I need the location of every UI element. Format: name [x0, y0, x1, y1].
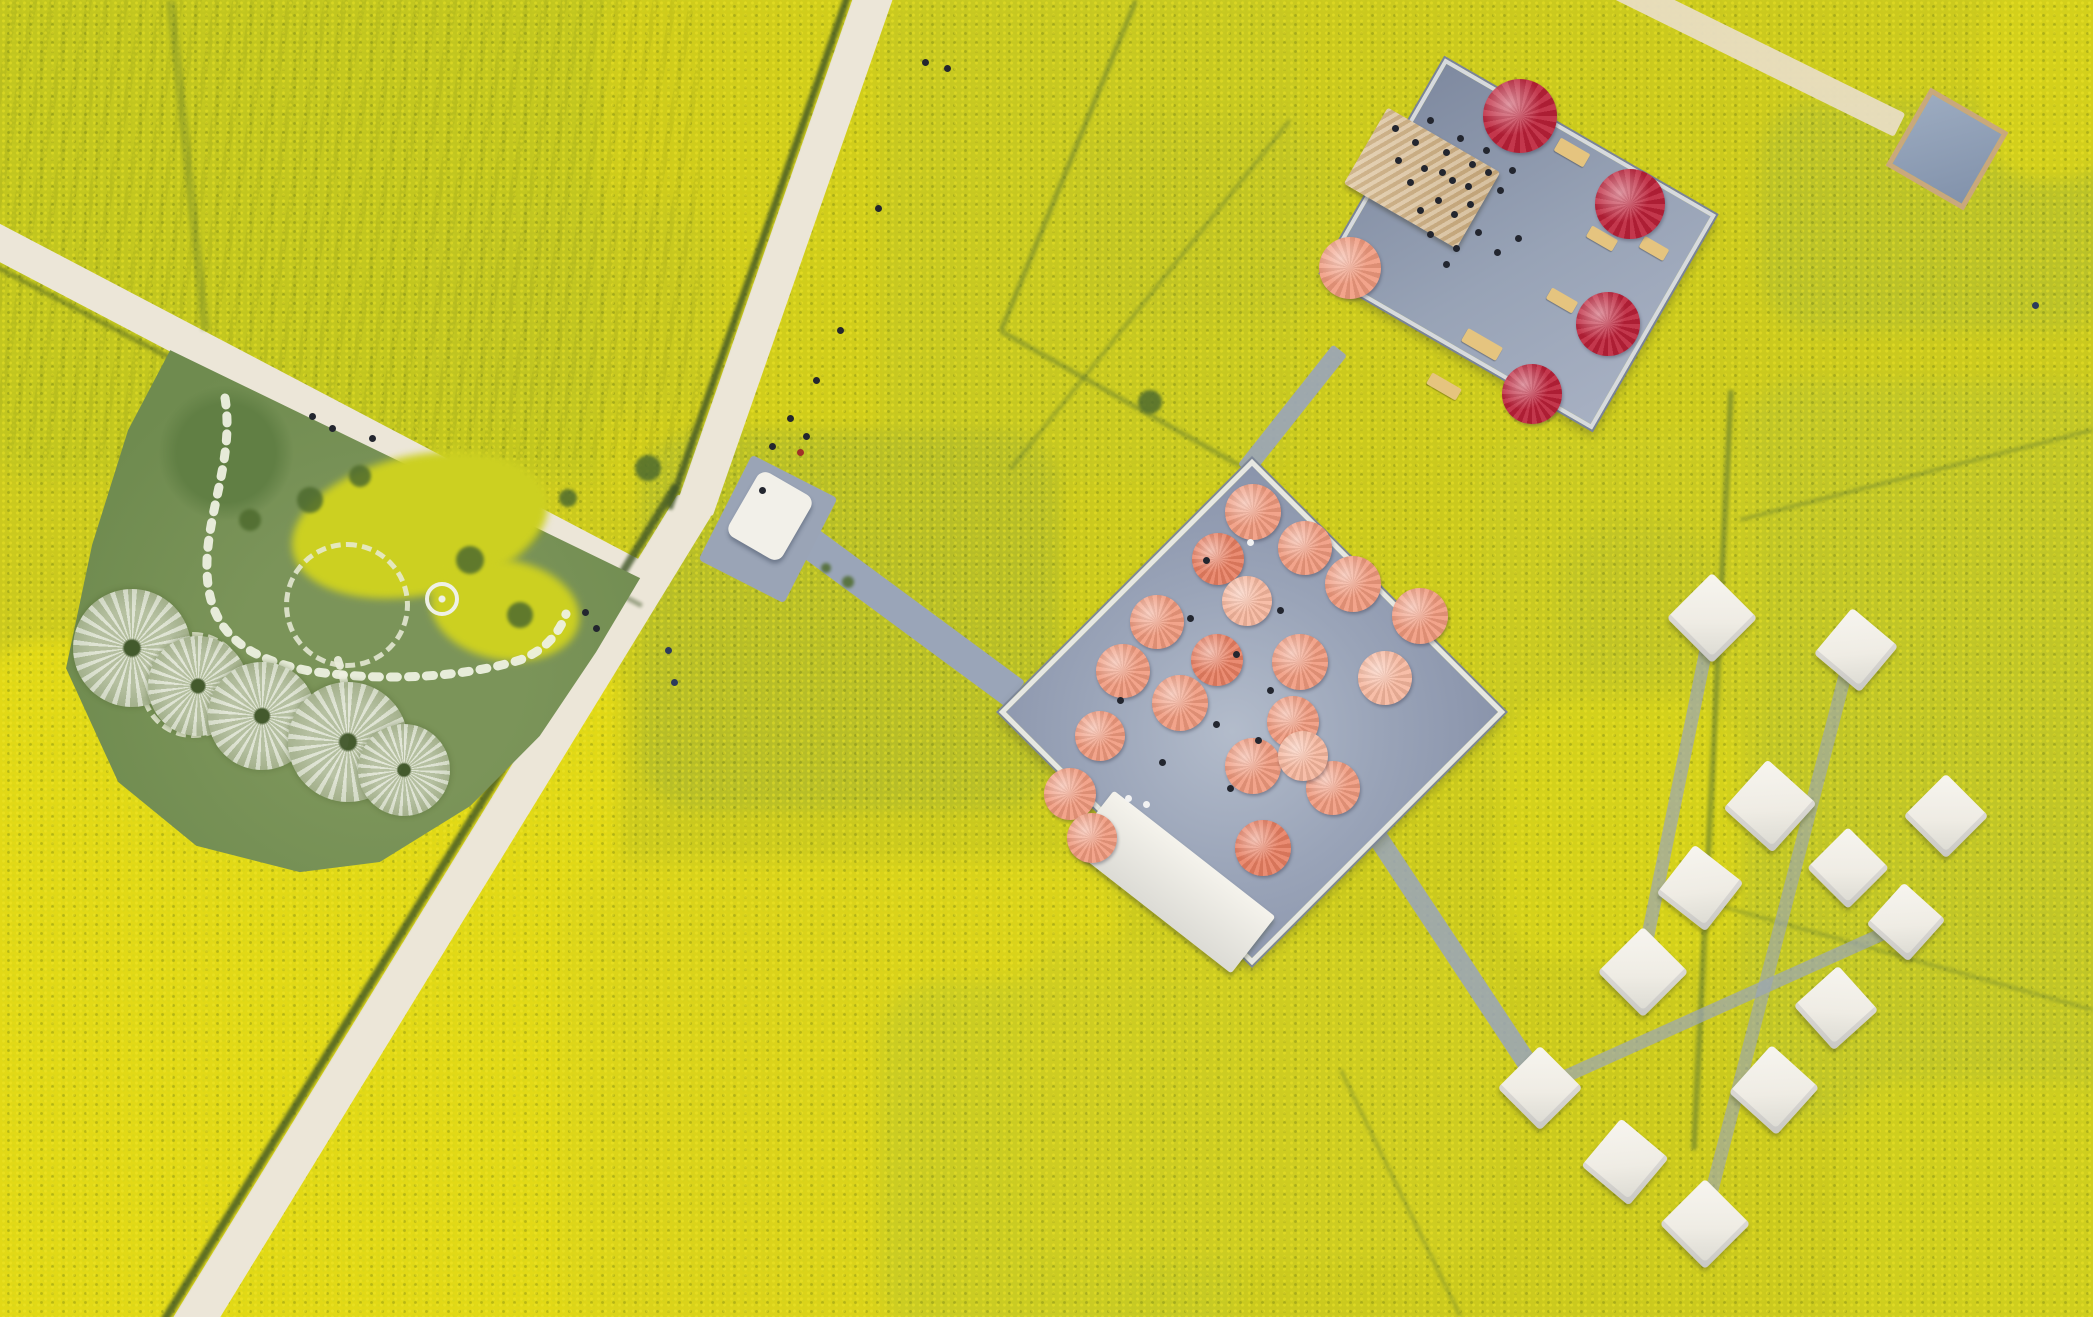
- person-dot: [1143, 801, 1150, 808]
- umbrella-salmon: [1075, 711, 1125, 761]
- person-dot: [1277, 607, 1284, 614]
- person-dot: [593, 625, 600, 632]
- person-dot: [1247, 539, 1254, 546]
- person-dot: [1453, 245, 1460, 252]
- garden-circle-feature: [425, 582, 459, 616]
- umbrella-salmon: [1392, 588, 1448, 644]
- bush: [842, 576, 854, 588]
- person-dot: [1227, 785, 1234, 792]
- person-dot: [582, 609, 589, 616]
- person-dot: [1449, 177, 1456, 184]
- person-dot: [813, 377, 820, 384]
- aerial-photo-scene: [0, 0, 2093, 1317]
- umbrella-salmon: [1130, 595, 1184, 649]
- bush: [239, 509, 261, 531]
- bush: [456, 546, 484, 574]
- bush: [1138, 390, 1162, 414]
- umbrella-salmon: [1278, 521, 1332, 575]
- person-dot: [1125, 795, 1132, 802]
- umbrella-salmon_light: [1278, 731, 1328, 781]
- person-dot: [803, 433, 810, 440]
- umbrella-crimson: [1595, 169, 1665, 239]
- bush: [821, 563, 831, 573]
- bush: [507, 602, 533, 628]
- person-dot: [1435, 197, 1442, 204]
- person-dot: [797, 449, 804, 456]
- person-dot: [1469, 161, 1476, 168]
- person-dot: [1427, 231, 1434, 238]
- umbrella-salmon: [1225, 484, 1281, 540]
- bush: [635, 455, 661, 481]
- person-dot: [1443, 149, 1450, 156]
- person-dot: [1407, 179, 1414, 186]
- person-dot: [1457, 135, 1464, 142]
- person-dot: [1467, 201, 1474, 208]
- person-dot: [875, 205, 882, 212]
- person-dot: [671, 679, 678, 686]
- person-dot: [309, 413, 316, 420]
- person-dot: [665, 647, 672, 654]
- person-dot: [1417, 207, 1424, 214]
- umbrella-salmon: [1319, 237, 1381, 299]
- person-dot: [1392, 125, 1399, 132]
- umbrella-salmon_deep: [1191, 634, 1243, 686]
- person-dot: [1395, 157, 1402, 164]
- umbrella-crimson: [1483, 79, 1557, 153]
- person-dot: [759, 487, 766, 494]
- person-dot: [2032, 302, 2039, 309]
- person-dot: [1451, 211, 1458, 218]
- person-dot: [1515, 235, 1522, 242]
- person-dot: [1187, 615, 1194, 622]
- umbrella-crimson: [1502, 364, 1562, 424]
- person-dot: [837, 327, 844, 334]
- umbrella-crimson: [1576, 292, 1640, 356]
- umbrella-salmon: [1272, 634, 1328, 690]
- umbrella-salmon: [1152, 675, 1208, 731]
- umbrella-salmon: [1325, 556, 1381, 612]
- person-dot: [1427, 117, 1434, 124]
- person-dot: [1509, 167, 1516, 174]
- garden-canopy-sculpture: [358, 724, 450, 816]
- person-dot: [1117, 697, 1124, 704]
- person-dot: [769, 443, 776, 450]
- person-dot: [369, 435, 376, 442]
- umbrella-salmon: [1096, 644, 1150, 698]
- person-dot: [787, 415, 794, 422]
- umbrella-salmon_light: [1358, 651, 1412, 705]
- umbrella-salmon_light: [1222, 576, 1272, 626]
- person-dot: [1412, 139, 1419, 146]
- person-dot: [1497, 187, 1504, 194]
- bush: [297, 487, 323, 513]
- person-dot: [1213, 721, 1220, 728]
- person-dot: [1439, 169, 1446, 176]
- person-dot: [1465, 183, 1472, 190]
- person-dot: [1203, 557, 1210, 564]
- person-dot: [1255, 737, 1262, 744]
- umbrella-salmon: [1067, 813, 1117, 863]
- person-dot: [1483, 147, 1490, 154]
- person-dot: [1233, 651, 1240, 658]
- umbrella-salmon_deep: [1235, 820, 1291, 876]
- person-dot: [1494, 249, 1501, 256]
- person-dot: [1485, 169, 1492, 176]
- person-dot: [1421, 165, 1428, 172]
- person-dot: [1443, 261, 1450, 268]
- bush: [559, 489, 577, 507]
- person-dot: [1159, 759, 1166, 766]
- stepping-stone-ring: [284, 542, 410, 668]
- bush: [349, 465, 371, 487]
- person-dot: [922, 59, 929, 66]
- person-dot: [329, 425, 336, 432]
- person-dot: [944, 65, 951, 72]
- person-dot: [1267, 687, 1274, 694]
- person-dot: [1475, 229, 1482, 236]
